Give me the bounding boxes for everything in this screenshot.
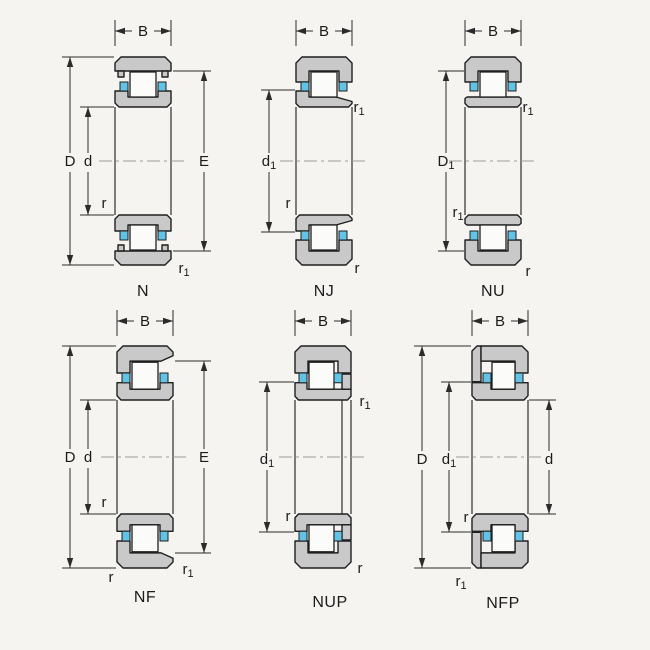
cage — [334, 373, 342, 383]
roller — [311, 225, 337, 250]
dim-label-width: B — [140, 313, 150, 330]
roller — [132, 525, 158, 552]
cage — [120, 231, 128, 240]
bearing-type-name: NF — [134, 589, 156, 606]
roller — [309, 362, 334, 389]
bearing-type-name: NJ — [314, 283, 335, 300]
dim-label-bore: d — [84, 449, 92, 466]
fillet-label-r: r — [464, 509, 469, 526]
bearing-ring — [465, 215, 521, 225]
cage — [515, 531, 523, 541]
bearing-type-name: NUP — [312, 594, 347, 611]
dim-label-outer-diameter: D — [65, 449, 76, 466]
dim-label-width: B — [319, 23, 329, 40]
dim-label-raceway: E — [199, 153, 209, 170]
cage — [160, 373, 168, 383]
cage — [470, 231, 478, 240]
bearing-ring — [162, 71, 168, 77]
cage — [158, 231, 166, 240]
cage — [158, 82, 166, 91]
cage — [483, 373, 491, 383]
fillet-label-r: r — [526, 263, 531, 280]
bearing-type-name: NFP — [486, 595, 520, 612]
dim-label-width: B — [488, 23, 498, 40]
dim-label-raceway: E — [199, 449, 209, 466]
dim-label-outer-diameter: D — [65, 153, 76, 170]
cage — [299, 373, 307, 383]
bearing-ring — [118, 71, 124, 77]
roller — [311, 72, 337, 97]
fillet-label-r: r — [286, 508, 291, 525]
roller — [492, 525, 515, 552]
dim-label-width: B — [495, 313, 505, 330]
cage — [508, 231, 516, 240]
bearing-ring — [115, 57, 171, 71]
cage — [508, 82, 516, 91]
cage — [483, 531, 491, 541]
cage — [334, 531, 342, 541]
bearing-ring — [118, 245, 124, 251]
roller — [309, 525, 334, 552]
fillet-label-r: r — [358, 560, 363, 577]
bearing-type-name: N — [137, 283, 149, 300]
cage — [339, 82, 347, 91]
cage — [160, 531, 168, 541]
fillet-label-r: r — [355, 260, 360, 277]
cage — [339, 231, 347, 240]
bearing-ring — [115, 251, 171, 265]
cage — [122, 373, 130, 383]
fillet-label-r: r — [286, 195, 291, 212]
cage — [301, 231, 309, 240]
roller — [132, 362, 158, 389]
bearing-ring — [472, 532, 481, 568]
bearing-ring — [465, 97, 521, 107]
roller — [492, 362, 515, 389]
roller — [130, 225, 156, 250]
dim-label-outer-diameter: D — [417, 451, 428, 468]
cage — [470, 82, 478, 91]
dim-label-width: B — [318, 313, 328, 330]
cage — [301, 82, 309, 91]
dim-label-bore: d — [84, 153, 92, 170]
roller — [480, 72, 506, 97]
cage — [120, 82, 128, 91]
cage — [515, 373, 523, 383]
bearing-type-name: NU — [481, 283, 505, 300]
cage — [299, 531, 307, 541]
bearing-ring — [342, 374, 351, 389]
bearing-ring — [342, 525, 351, 540]
bearing-types-figure: B D d E r r1 N B d1 r r1 r NJ B D1 r1 r1… — [0, 0, 650, 650]
bearing-ring — [162, 245, 168, 251]
dim-label-bore: d — [545, 451, 553, 468]
fillet-label-r: r — [102, 494, 107, 511]
bearing-ring — [472, 346, 481, 382]
dim-label-width: B — [138, 23, 148, 40]
fillet-label-r: r — [102, 195, 107, 212]
fillet-label-r: r — [109, 569, 114, 586]
roller — [130, 72, 156, 97]
roller — [480, 225, 506, 250]
cage — [122, 531, 130, 541]
